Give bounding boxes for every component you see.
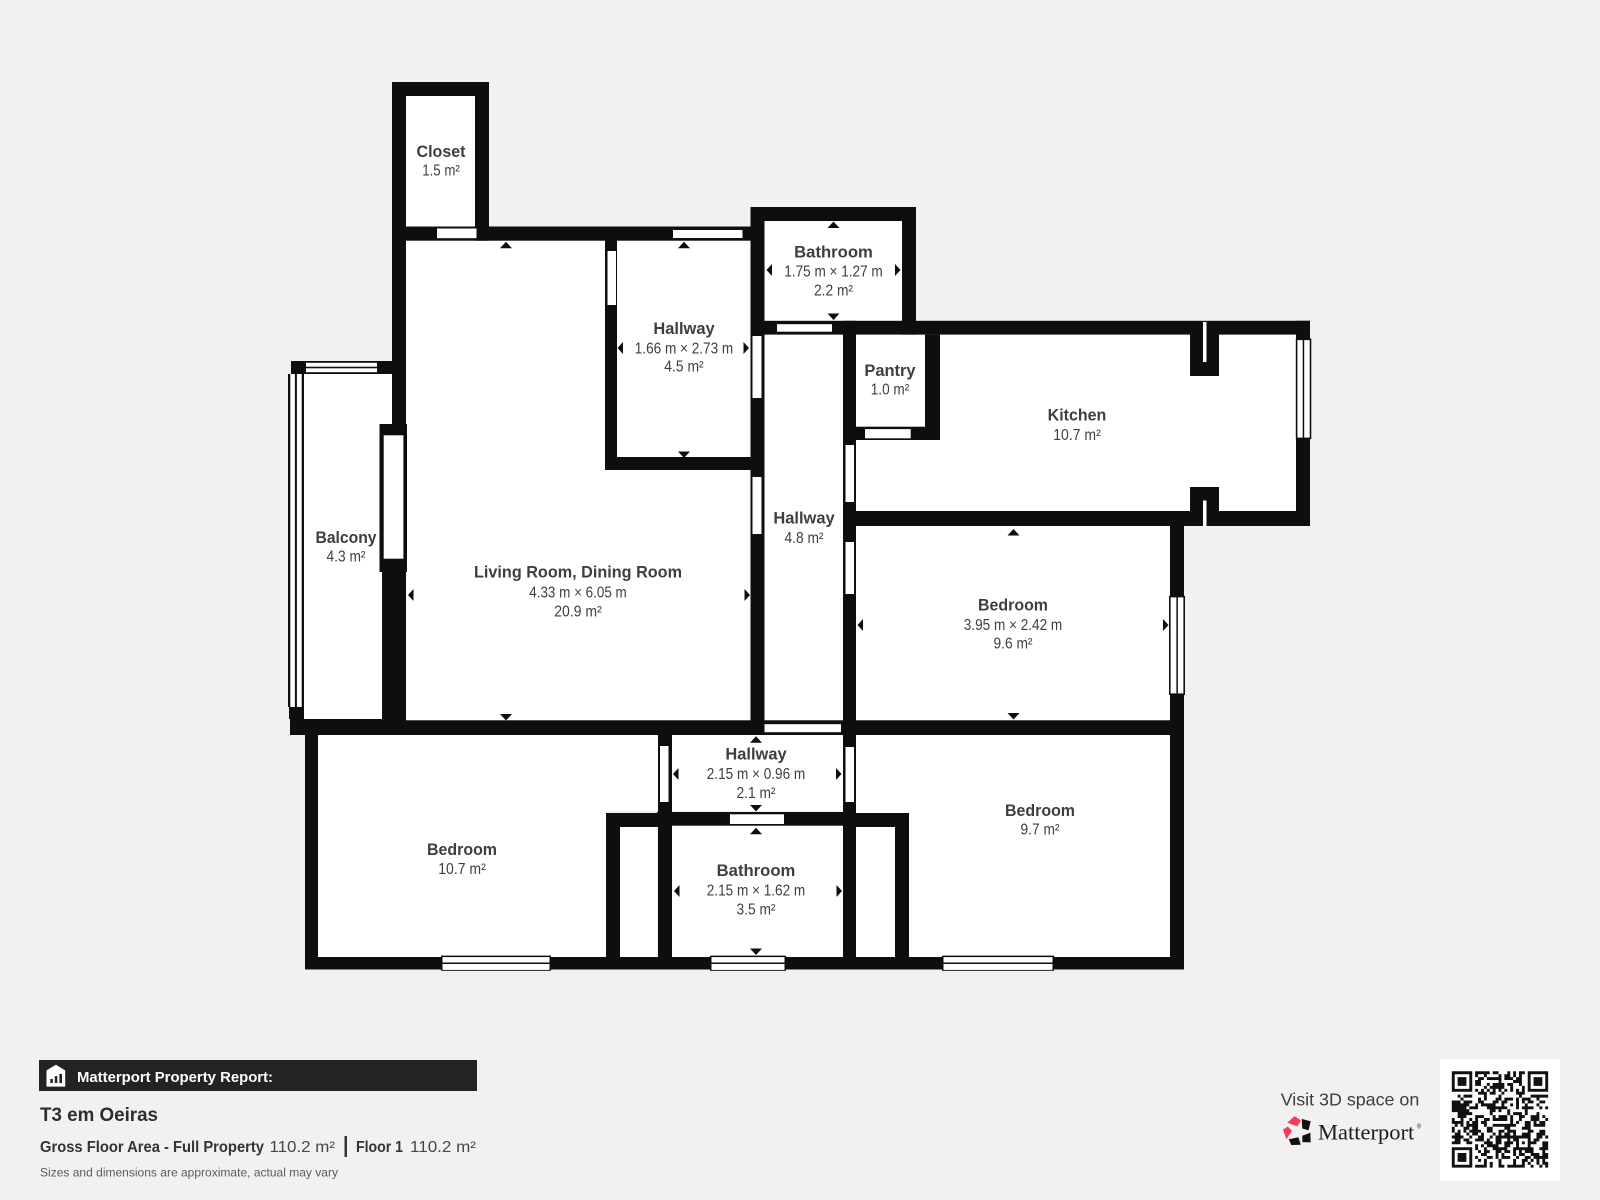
- svg-text:4.5 m²: 4.5 m²: [664, 359, 703, 376]
- svg-text:1.66 m × 2.73 m: 1.66 m × 2.73 m: [635, 340, 734, 357]
- svg-text:10.7 m²: 10.7 m²: [438, 861, 486, 878]
- svg-text:Sizes and dimensions are appro: Sizes and dimensions are approximate, ac…: [40, 1166, 339, 1180]
- svg-text:9.6 m²: 9.6 m²: [994, 636, 1033, 653]
- svg-text:20.9 m²: 20.9 m²: [554, 604, 602, 621]
- svg-text:Balcony: Balcony: [316, 528, 378, 547]
- svg-text:Visit 3D space on: Visit 3D space on: [1281, 1090, 1420, 1110]
- svg-text:Floor 1: Floor 1: [356, 1139, 403, 1156]
- svg-text:Closet: Closet: [417, 142, 466, 161]
- svg-text:1.0 m²: 1.0 m²: [871, 382, 910, 399]
- svg-text:Gross Floor Area - Full Proper: Gross Floor Area - Full Property: [40, 1139, 264, 1156]
- svg-text:Living Room, Dining Room: Living Room, Dining Room: [474, 563, 682, 582]
- svg-text:®: ®: [1417, 1124, 1422, 1131]
- svg-text:Bathroom: Bathroom: [717, 861, 796, 880]
- svg-text:Hallway: Hallway: [725, 745, 787, 764]
- svg-text:10.7 m²: 10.7 m²: [1053, 427, 1101, 444]
- svg-text:3.95 m × 2.42 m: 3.95 m × 2.42 m: [964, 617, 1063, 634]
- svg-text:Bedroom: Bedroom: [978, 596, 1048, 615]
- svg-text:9.7 m²: 9.7 m²: [1021, 822, 1060, 839]
- svg-text:110.2 m²: 110.2 m²: [270, 1139, 336, 1156]
- svg-text:Bedroom: Bedroom: [427, 840, 497, 859]
- svg-text:T3 em Oeiras: T3 em Oeiras: [40, 1104, 158, 1126]
- svg-text:1.75 m × 1.27 m: 1.75 m × 1.27 m: [784, 264, 883, 281]
- svg-text:4.8 m²: 4.8 m²: [785, 530, 824, 547]
- svg-text:4.33 m × 6.05 m: 4.33 m × 6.05 m: [529, 585, 627, 602]
- svg-text:2.1 m²: 2.1 m²: [737, 785, 776, 802]
- svg-text:2.15 m × 1.62 m: 2.15 m × 1.62 m: [707, 883, 806, 900]
- svg-text:Matterport: Matterport: [1318, 1120, 1415, 1145]
- svg-text:Kitchen: Kitchen: [1048, 406, 1107, 425]
- svg-text:1.5 m²: 1.5 m²: [422, 163, 460, 180]
- svg-text:Pantry: Pantry: [864, 361, 916, 380]
- svg-text:4.3 m²: 4.3 m²: [327, 549, 366, 566]
- svg-text:2.2 m²: 2.2 m²: [814, 283, 853, 300]
- svg-text:3.5 m²: 3.5 m²: [737, 902, 776, 919]
- svg-text:Matterport Property Report:: Matterport Property Report:: [77, 1069, 273, 1086]
- svg-text:2.15 m × 0.96 m: 2.15 m × 0.96 m: [707, 766, 806, 783]
- svg-text:Bedroom: Bedroom: [1005, 801, 1075, 820]
- svg-text:Hallway: Hallway: [653, 319, 715, 338]
- svg-text:Bathroom: Bathroom: [794, 243, 873, 262]
- svg-text:Hallway: Hallway: [773, 509, 835, 528]
- svg-text:110.2 m²: 110.2 m²: [410, 1139, 476, 1156]
